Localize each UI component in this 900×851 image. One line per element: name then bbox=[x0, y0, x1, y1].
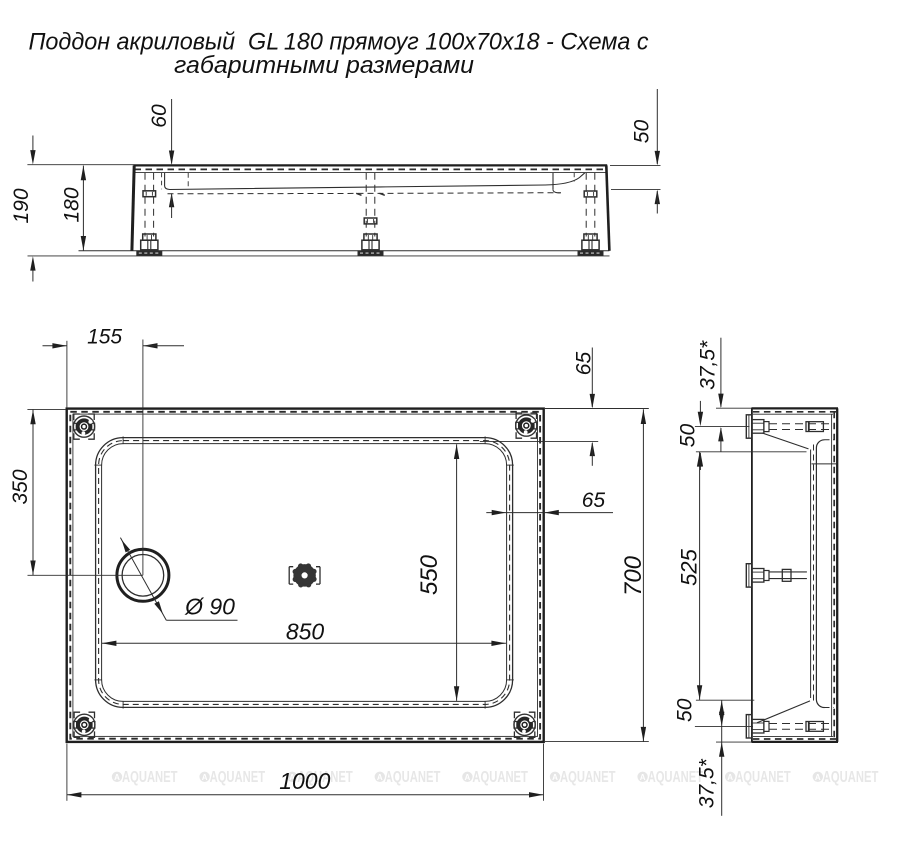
svg-text:AQUANET: AQUANET bbox=[560, 769, 616, 786]
svg-text:AQUANET: AQUANET bbox=[472, 769, 528, 786]
svg-text:550: 550 bbox=[416, 554, 443, 595]
svg-text:1000: 1000 bbox=[279, 768, 330, 794]
svg-text:A: A bbox=[640, 773, 646, 782]
svg-text:A: A bbox=[727, 773, 733, 782]
svg-text:A: A bbox=[465, 773, 471, 782]
svg-text:190: 190 bbox=[10, 188, 33, 223]
svg-text:350: 350 bbox=[9, 469, 32, 504]
svg-text:65: 65 bbox=[573, 352, 596, 376]
svg-text:габаритными размерами: габаритными размерами bbox=[174, 52, 474, 79]
svg-text:AQUANET: AQUANET bbox=[210, 769, 266, 786]
svg-text:37,5*: 37,5* bbox=[697, 340, 720, 390]
svg-text:AQUANET: AQUANET bbox=[735, 769, 791, 786]
svg-text:AQUANET: AQUANET bbox=[122, 769, 178, 786]
svg-text:A: A bbox=[114, 773, 120, 782]
svg-text:180: 180 bbox=[61, 187, 84, 222]
svg-text:AQUANET: AQUANET bbox=[823, 769, 879, 786]
svg-text:A: A bbox=[202, 773, 208, 782]
svg-text:155: 155 bbox=[87, 326, 122, 349]
svg-text:A: A bbox=[377, 773, 383, 782]
svg-text:50: 50 bbox=[674, 698, 697, 722]
svg-text:37,5*: 37,5* bbox=[696, 758, 719, 808]
svg-text:A: A bbox=[815, 773, 821, 782]
svg-text:700: 700 bbox=[620, 555, 647, 596]
svg-text:50: 50 bbox=[631, 120, 654, 144]
svg-text:Ø 90: Ø 90 bbox=[184, 594, 235, 620]
svg-text:AQUANET: AQUANET bbox=[385, 769, 441, 786]
svg-text:A: A bbox=[552, 773, 558, 782]
svg-text:50: 50 bbox=[677, 424, 700, 448]
svg-text:850: 850 bbox=[286, 619, 325, 645]
svg-text:60: 60 bbox=[148, 104, 171, 128]
svg-text:525: 525 bbox=[677, 548, 702, 585]
svg-text:65: 65 bbox=[582, 489, 606, 512]
